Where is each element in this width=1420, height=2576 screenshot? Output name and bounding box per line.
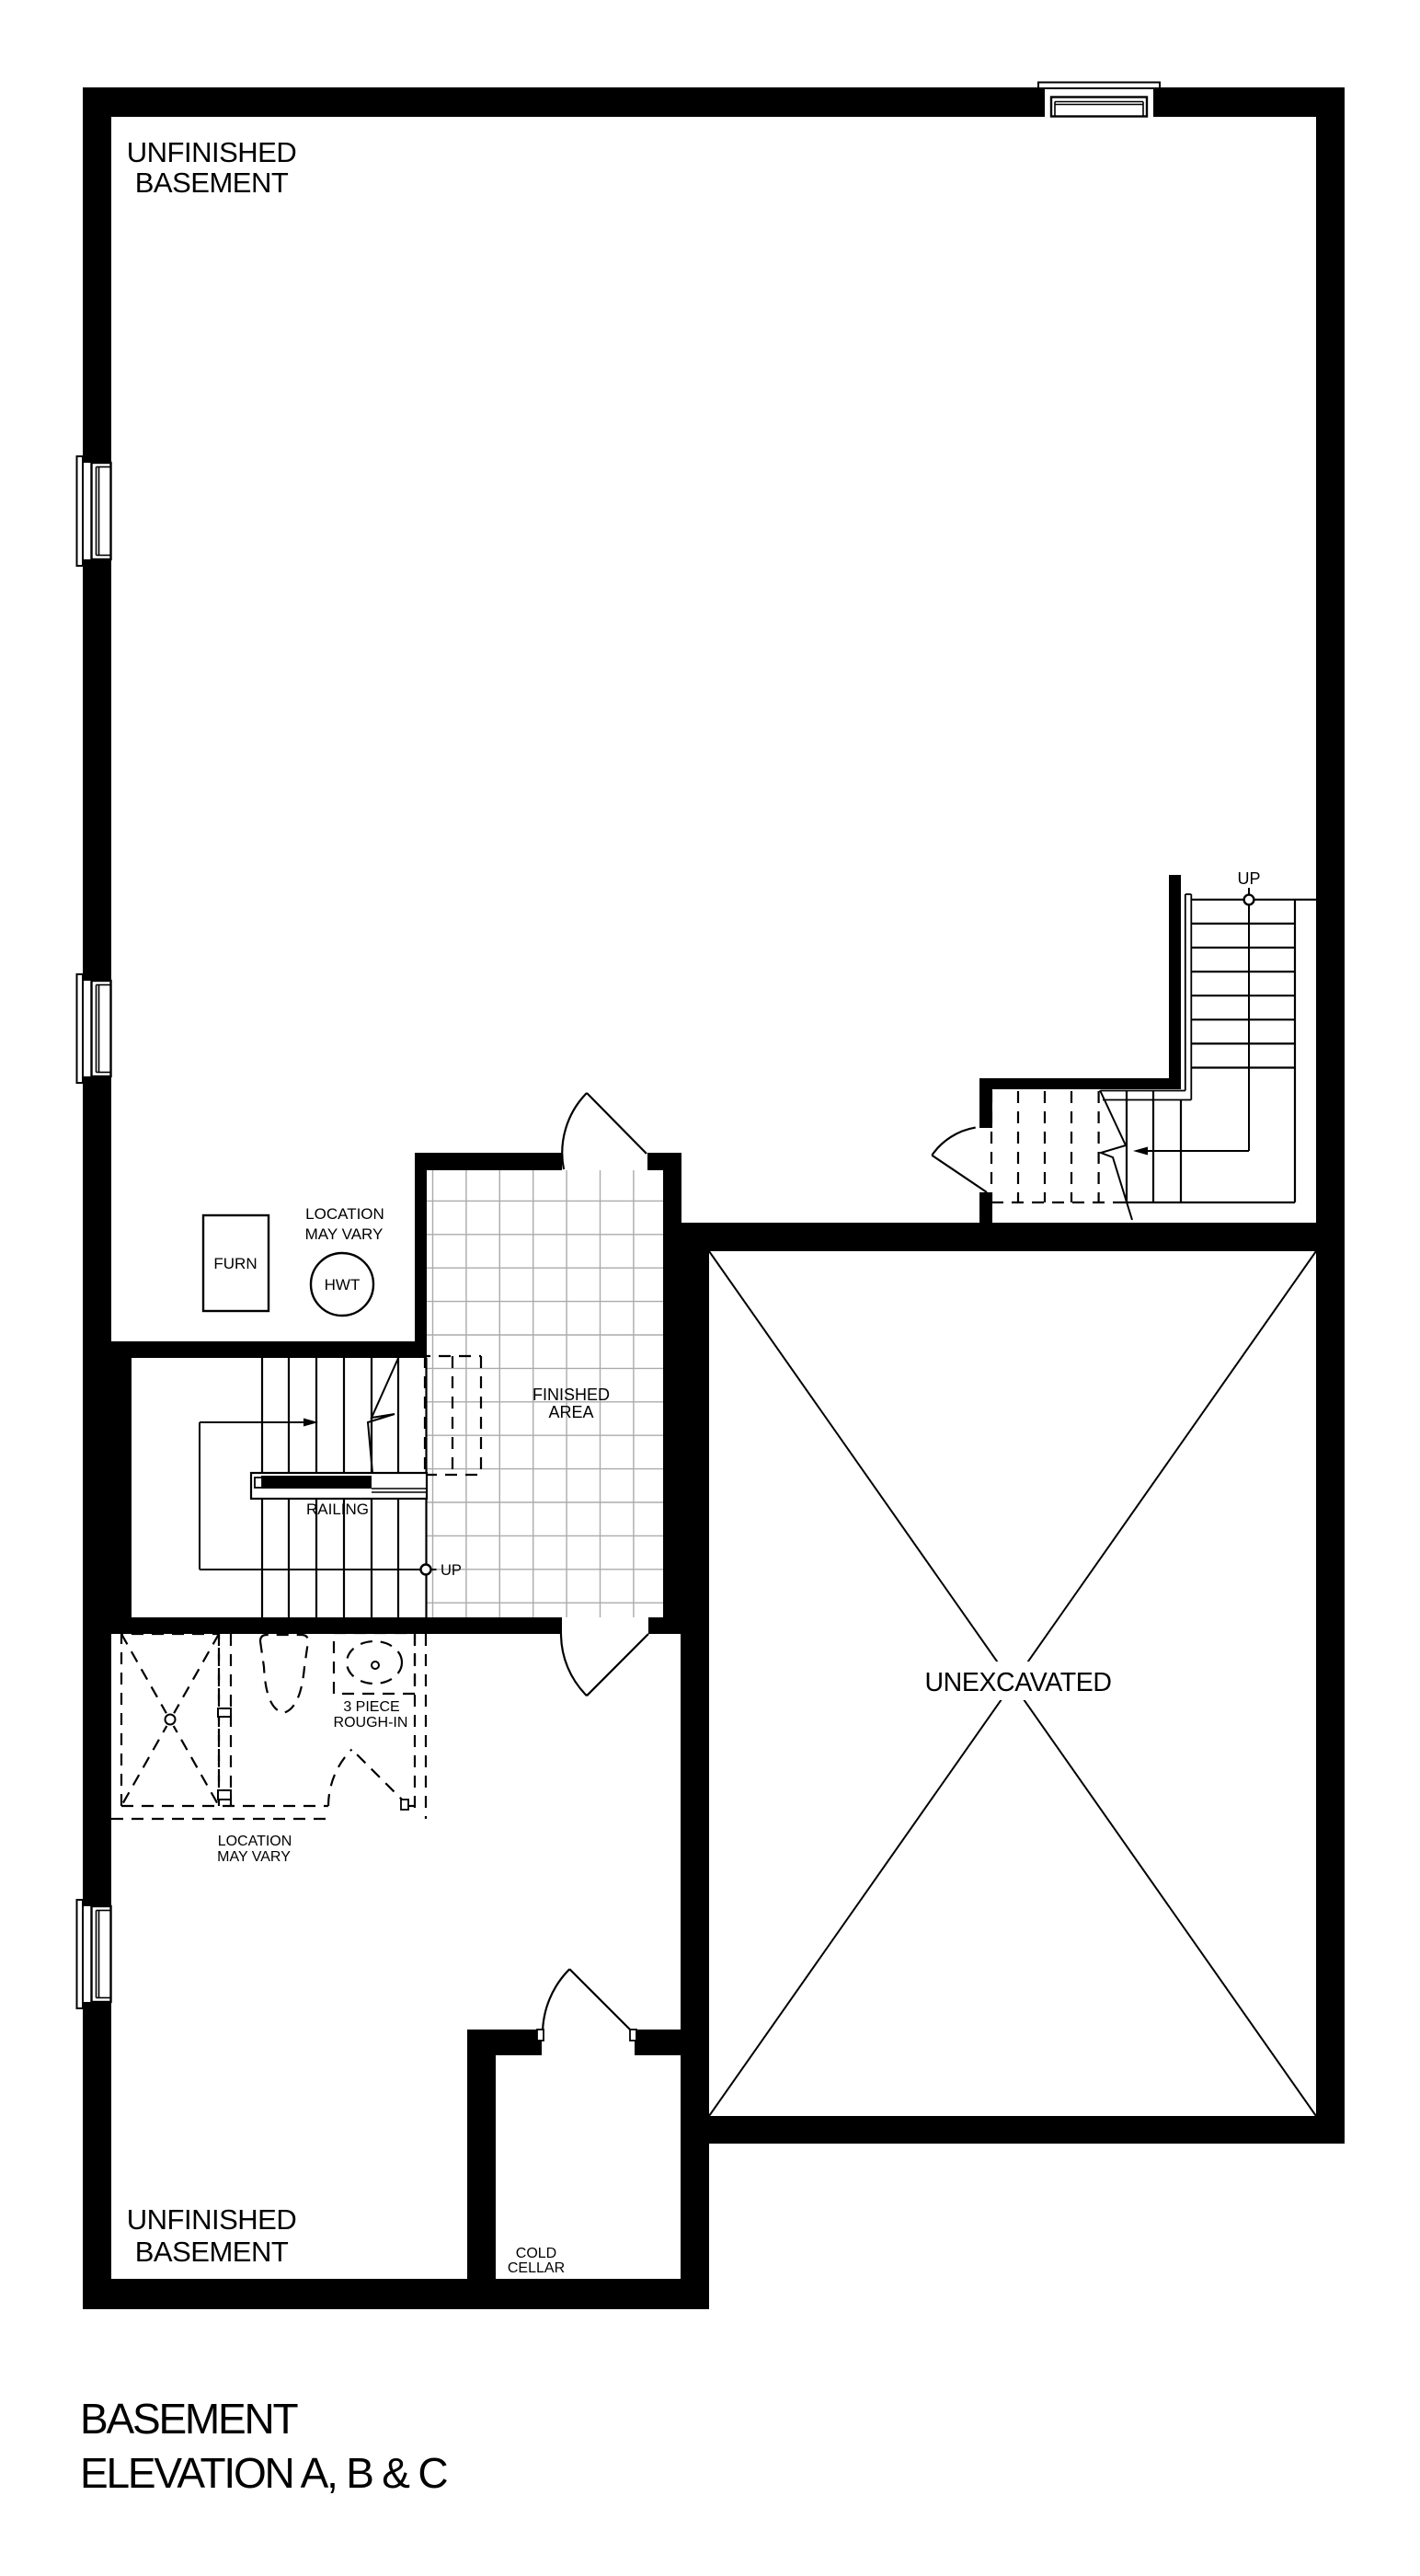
svg-text:AREA: AREA [548,1403,593,1421]
svg-text:BASEMENT: BASEMENT [135,2236,289,2268]
svg-text:ROUGH-IN: ROUGH-IN [334,1715,408,1731]
svg-text:RAILING: RAILING [306,1501,369,1518]
svg-text:FURN: FURN [213,1255,257,1272]
svg-text:BASEMENT: BASEMENT [135,167,289,199]
svg-text:UP: UP [1237,869,1260,888]
svg-text:LOCATION: LOCATION [218,1834,292,1849]
svg-text:UNEXCAVATED: UNEXCAVATED [924,1668,1111,1697]
svg-text:FINISHED: FINISHED [532,1386,610,1404]
svg-text:UNFINISHED: UNFINISHED [127,2203,296,2236]
svg-text:MAY VARY: MAY VARY [305,1225,384,1243]
svg-text:3 PIECE: 3 PIECE [343,1699,399,1715]
svg-text:MAY VARY: MAY VARY [217,1849,291,1865]
svg-text:BASEMENT: BASEMENT [80,2395,299,2443]
svg-text:UP: UP [441,1562,462,1579]
svg-text:COLD: COLD [516,2246,556,2261]
svg-text:CELLAR: CELLAR [508,2260,565,2276]
svg-text:ELEVATION A, B & C: ELEVATION A, B & C [80,2449,447,2497]
svg-text:LOCATION: LOCATION [305,1205,384,1223]
svg-text:UNFINISHED: UNFINISHED [127,136,296,168]
svg-text:HWT: HWT [325,1276,361,1294]
